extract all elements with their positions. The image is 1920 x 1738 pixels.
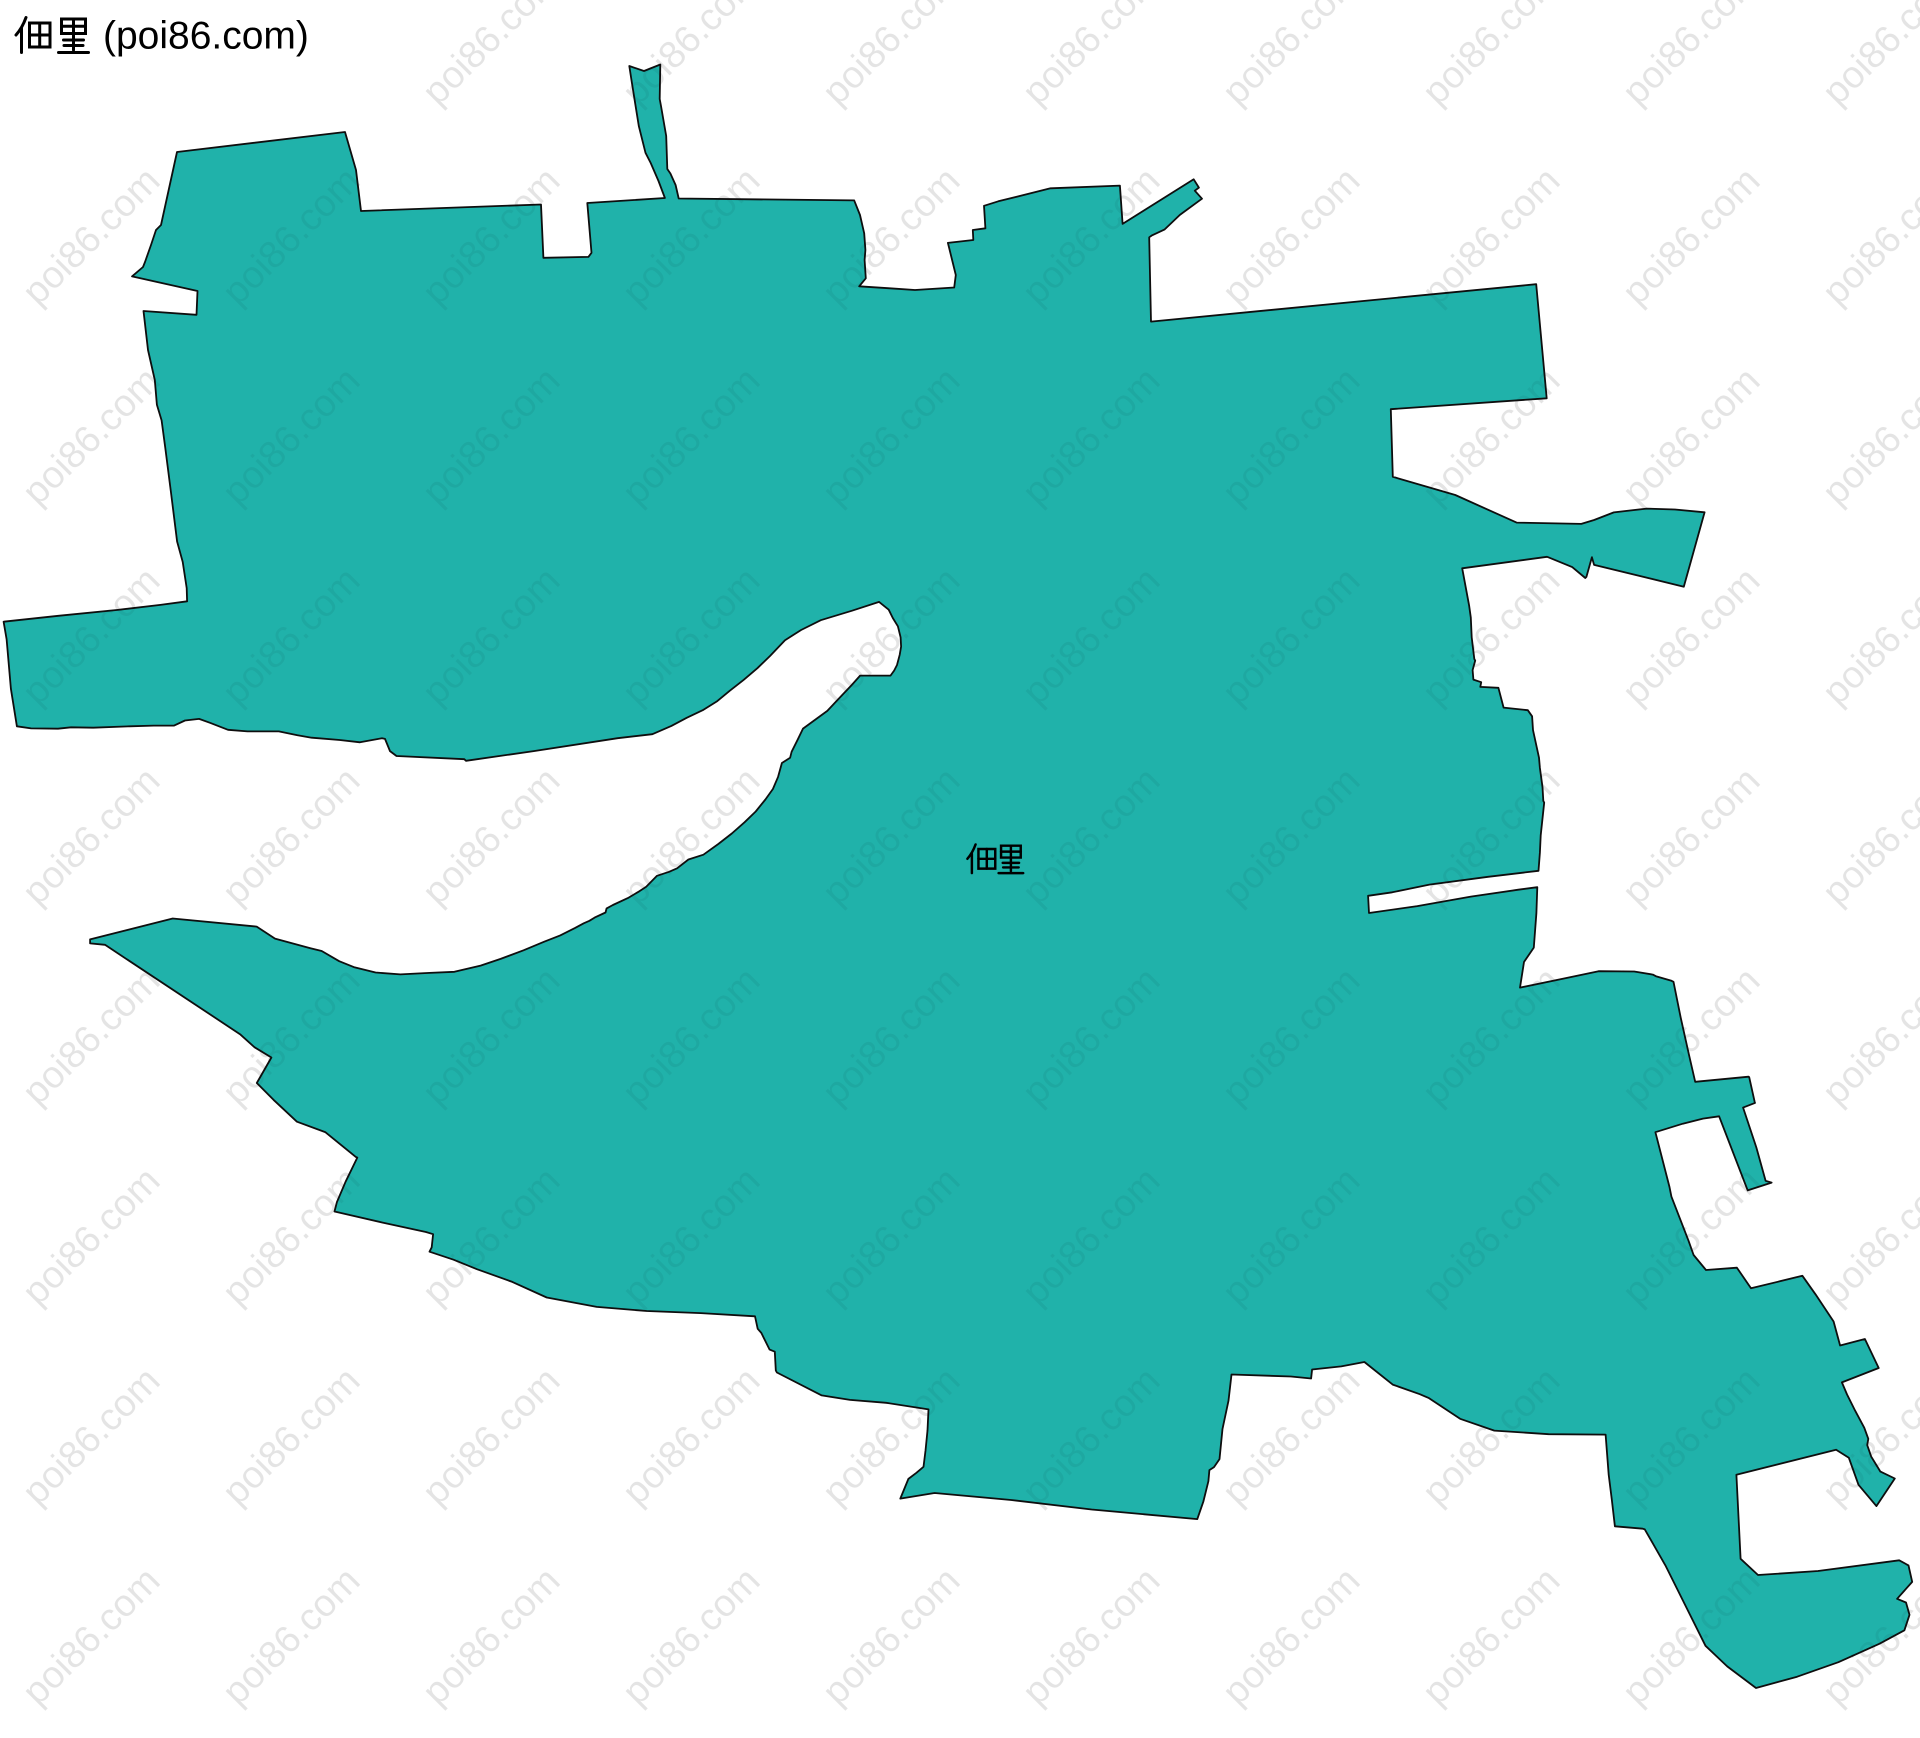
svg-text:(poi86.com): (poi86.com) xyxy=(103,15,309,58)
